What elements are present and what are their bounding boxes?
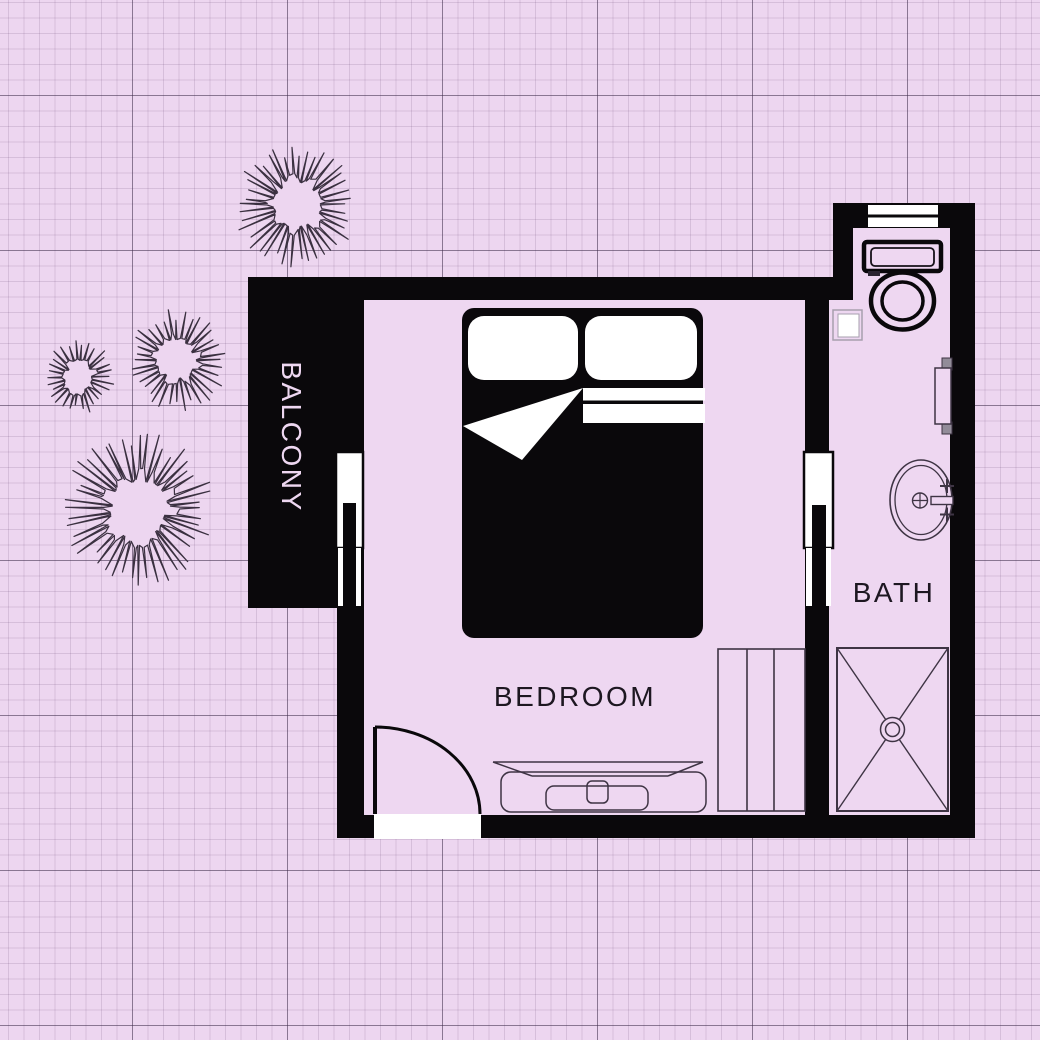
sheet-band	[583, 388, 705, 401]
radiator	[935, 358, 952, 434]
bedroom-label: BEDROOM	[494, 681, 656, 712]
shower-drain-inner	[886, 723, 900, 737]
toilet-bowl-inner	[882, 282, 923, 320]
wardrobe-body	[718, 649, 805, 811]
dresser-body	[501, 772, 706, 812]
shower	[837, 648, 948, 811]
toilet-tank-lid	[871, 248, 934, 266]
bath-right-wall	[950, 203, 975, 838]
radiator-body	[935, 368, 951, 424]
plant-icon	[133, 310, 225, 411]
window-pane	[868, 205, 938, 215]
faucet-spout	[931, 497, 953, 505]
floor-plan-svg: BEDROOM BATH BALCONY	[0, 0, 1040, 1040]
balcony-label: BALCONY	[276, 361, 307, 512]
sheet-band	[583, 404, 705, 423]
plant-icon	[48, 341, 114, 412]
floor-plan-page: { "plan": { "labels": { "bedroom": "BEDR…	[0, 0, 1040, 1040]
pillow-right	[585, 316, 697, 380]
plant-icon	[65, 434, 209, 585]
bath-label: BATH	[853, 577, 936, 608]
bed	[462, 308, 705, 638]
toilet-flush-button	[868, 271, 880, 276]
wardrobe	[718, 649, 805, 811]
bath-window	[804, 452, 833, 607]
door-opening	[374, 814, 481, 839]
balcony-window	[336, 452, 363, 607]
window-pane	[868, 218, 938, 228]
pillow-left	[468, 316, 578, 380]
switch-button	[838, 314, 859, 337]
plant-icon	[239, 147, 350, 266]
window-sash	[343, 503, 356, 607]
toilet	[864, 242, 941, 330]
window-sash	[812, 505, 826, 607]
